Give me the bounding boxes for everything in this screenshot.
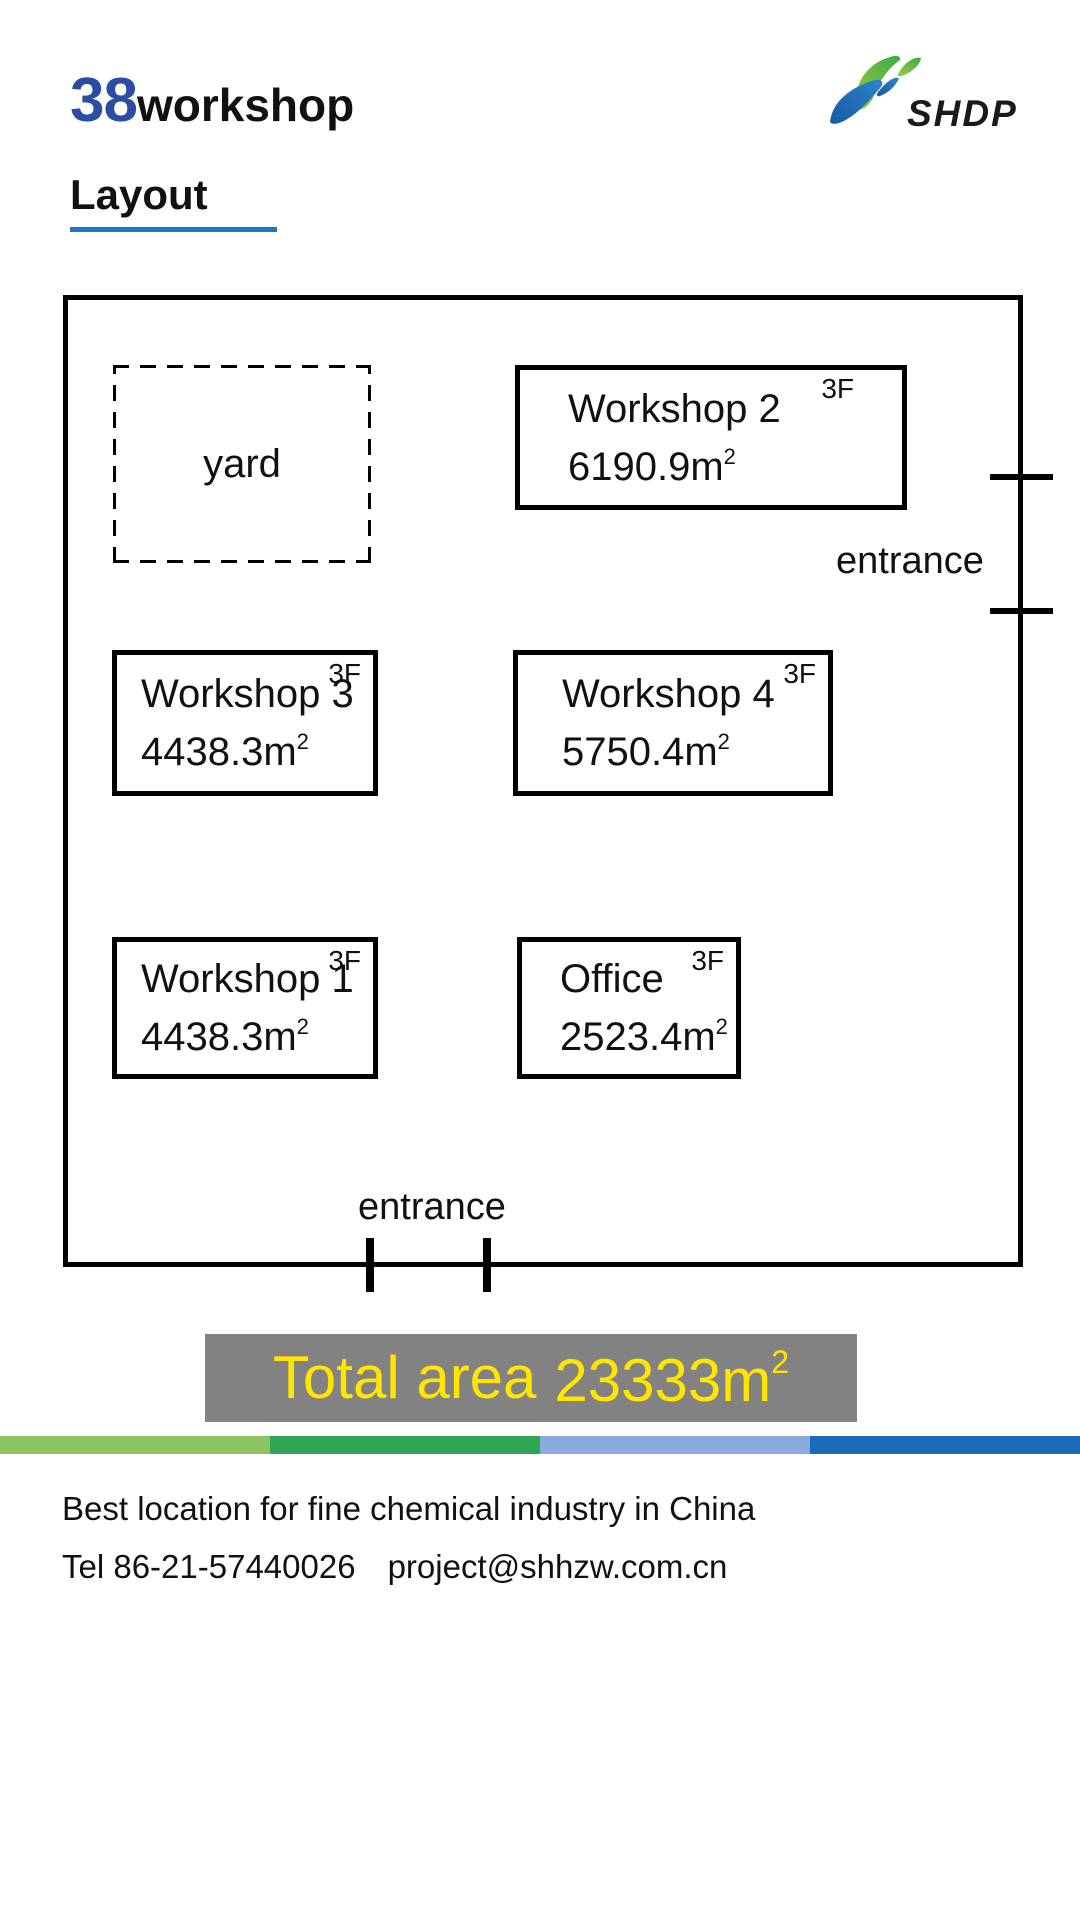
title-word: workshop [137, 82, 354, 128]
gate-tick-bottom-left [366, 1238, 374, 1292]
room-workshop-3: 3F Workshop 3 4438.3m2 [112, 650, 378, 796]
floor-tag: 3F [328, 659, 361, 690]
page-title: 38workshop [70, 70, 354, 132]
total-area-label: Total area [273, 1348, 537, 1408]
color-stripe [0, 1436, 1080, 1454]
room-area: 4438.3m2 [141, 1003, 373, 1061]
floor-tag: 3F [821, 374, 854, 405]
room-area: 4438.3m2 [141, 718, 373, 776]
entrance-label-right: entrance [836, 540, 984, 583]
company-logo: SHDP [822, 48, 1042, 138]
yard-label: yard [203, 442, 281, 487]
stripe-segment [0, 1436, 270, 1454]
floor-tag: 3F [783, 659, 816, 690]
gate-tick-bottom-right [483, 1238, 491, 1292]
section-heading: Layout [70, 174, 208, 216]
footer-tel: Tel 86-21-57440026 [62, 1548, 356, 1585]
logo-graphic: SHDP [822, 48, 1042, 138]
gate-tick-right-bottom [990, 608, 1053, 614]
floor-tag: 3F [691, 946, 724, 977]
room-area: 2523.4m2 [560, 1003, 736, 1061]
footer-contact: Tel 86-21-57440026project@shhzw.com.cn [62, 1548, 727, 1586]
room-workshop-2: 3F Workshop 2 6190.9m2 [515, 365, 907, 510]
room-area: 6190.9m2 [568, 433, 902, 491]
room-area: 5750.4m2 [562, 718, 828, 776]
room-office: 3F Office 2523.4m2 [517, 937, 741, 1079]
stripe-segment [270, 1436, 540, 1454]
yard-area: yard [113, 365, 371, 563]
total-area-banner: Total area 23333m2 [205, 1334, 857, 1422]
footer-email: project@shhzw.com.cn [388, 1548, 728, 1585]
site-plan: yard 3F Workshop 2 6190.9m2 3F Workshop … [63, 295, 1023, 1267]
page: 38workshop SHDP La [0, 0, 1080, 1919]
stripe-segment [540, 1436, 810, 1454]
heading-underline [70, 227, 277, 232]
logo-wordmark: SHDP [907, 93, 1018, 134]
logo-leaf-blue-icon [830, 78, 899, 124]
entrance-label-bottom: entrance [358, 1186, 506, 1229]
title-number: 38 [70, 70, 137, 132]
floor-tag: 3F [328, 946, 361, 977]
gate-tick-right-top [990, 474, 1053, 480]
footer-tagline: Best location for fine chemical industry… [62, 1490, 755, 1528]
stripe-segment [810, 1436, 1080, 1454]
total-area-value: 23333m2 [554, 1346, 789, 1411]
room-workshop-4: 3F Workshop 4 5750.4m2 [513, 650, 833, 796]
room-workshop-1: 3F Workshop 1 4438.3m2 [112, 937, 378, 1079]
